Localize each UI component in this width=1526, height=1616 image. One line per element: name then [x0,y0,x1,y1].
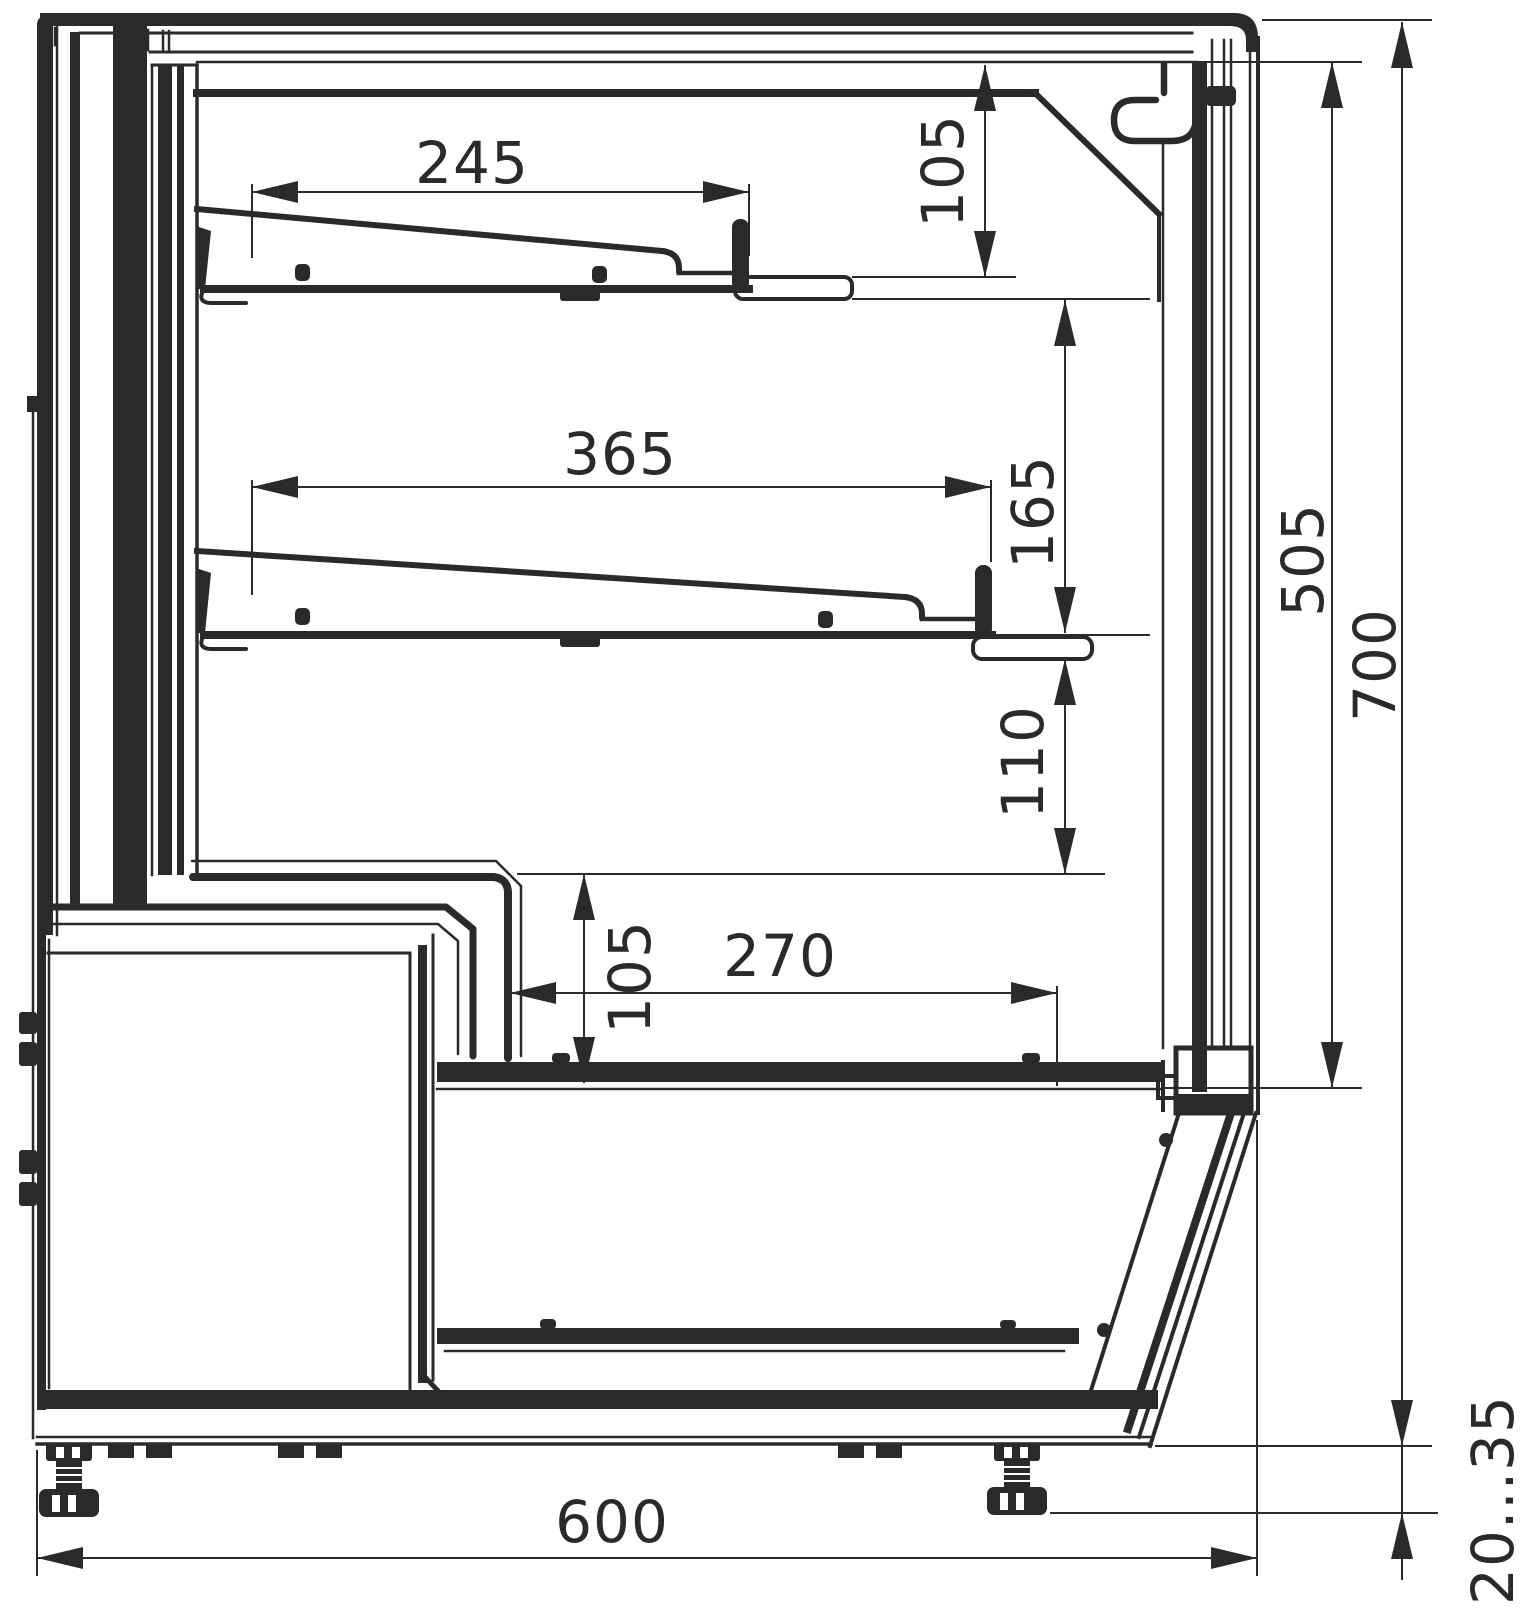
compartment-wall-band [418,945,427,1383]
adjustable-foot-left [39,1443,99,1517]
dim-label-600: 600 [555,1488,669,1556]
rail-bottom-bar [1176,1094,1251,1113]
door-hinge-lower [19,1150,37,1206]
duct-panel-1 [158,65,172,875]
bumper-line-outer [1150,1113,1256,1446]
dimension-overall-height: 700 [1341,22,1413,1580]
arrow-up [974,65,996,111]
back-wall-outer-band [37,16,53,935]
shelf-mid-rivet-1 [295,608,310,625]
dimension-shelf-mid-depth: 365 [252,420,991,498]
adjustable-foot-right [987,1443,1047,1515]
dim-label-700: 700 [1341,608,1409,722]
shelf-mid-rivet-2 [818,611,833,628]
arrow-down [1391,1400,1413,1446]
bumper-line-3 [1128,1113,1231,1429]
dim-label-105-top: 105 [909,114,977,228]
arrow-up [1054,300,1076,346]
shelf-mid-stopper-pin [975,565,992,637]
shelf-top-under-tab [560,291,600,301]
foot-plate [46,1443,92,1461]
technical-drawing-page: 245 105 365 165 110 [0,0,1526,1616]
bumper-line-2 [1139,1113,1244,1437]
arrow-up [1054,659,1076,705]
shelf-top-rivet-2 [592,266,607,283]
arrow-up-outside [1391,1513,1413,1559]
shelf-top-rivet-1 [295,264,310,281]
glass-pane [1192,62,1207,1092]
dim-label-165: 165 [999,455,1067,569]
shelf-top-bracket [196,226,211,289]
door-hinge-upper [19,1012,37,1066]
back-wall-lower-band [37,935,46,1410]
back-wall-panel-2 [113,25,147,907]
arrow-up [1321,62,1343,108]
shelf-top-surface [197,209,662,251]
dim-label-245: 245 [415,129,529,197]
arrow-right [1011,982,1057,1004]
dim-label-foot-range: 20...35 [1459,1395,1526,1605]
basin-rivet-2 [1000,1320,1016,1329]
arrow-right [703,181,749,203]
shelf-mid-bracket [196,568,211,633]
foot-plate [994,1443,1040,1461]
step-cover-3 [52,924,458,1054]
well-deck [437,1062,1163,1082]
arrow-left [37,1547,83,1569]
shelf-top [196,209,852,303]
base-mounting-tabs [108,1444,902,1458]
display-case-cross-section: 245 105 365 165 110 [0,0,1526,1616]
arrow-left [252,476,298,498]
front-glass-assembly [1087,38,1258,1446]
dimension-inner-height: 505 [1269,62,1343,1088]
back-wall-panel-1 [70,32,80,907]
arrow-right [945,476,991,498]
arrow-down [974,231,996,277]
dim-label-365: 365 [563,420,677,488]
dimension-shelf-to-step: 110 [989,659,1076,874]
duct-panel-2 [177,65,184,875]
dimension-foot-adjustment: 20...35 [1391,1395,1526,1605]
dim-label-105-low: 105 [596,920,664,1034]
dimensions: 245 105 365 165 110 [37,20,1526,1605]
bumper-clip-1 [1159,1133,1173,1147]
lamp-rail-hook [1114,64,1196,141]
dimension-base-depth: 600 [37,1488,1257,1569]
canopy [40,13,1258,300]
arrow-left [510,982,556,1004]
dimension-shelf-gap: 165 [999,300,1076,633]
arrow-up [1391,22,1413,68]
dim-label-505: 505 [1269,503,1337,617]
dimension-well-depth: 270 [510,922,1057,1004]
back-wall [19,16,197,1438]
basin-bottom-band [437,1328,1079,1344]
shelf-top-nose [662,251,679,272]
arrow-down [1054,828,1076,874]
dimension-well-height: 105 [573,874,664,1083]
arrow-down [1054,587,1076,633]
foot-stem [1004,1461,1030,1490]
shelf-mid-nose [905,597,922,618]
dim-label-270: 270 [723,922,837,990]
shelf-middle [196,551,1092,659]
deck-rivet-2 [1022,1053,1040,1063]
rear-cover-notch [27,396,37,412]
canopy-front-slope [1035,93,1159,214]
base-band [37,1390,1158,1409]
deck-rivet-1 [552,1053,570,1063]
shelf-mid-arm [973,637,1092,659]
basin-rivet-1 [540,1319,556,1329]
arrow-left [252,181,298,203]
dim-label-110: 110 [989,705,1057,819]
shelf-mid-surface [197,551,905,597]
machine-compartment [410,935,439,1392]
shelf-mid-under-tab [560,637,600,647]
bumper-clip-2 [1097,1323,1111,1337]
arrow-up [573,874,595,920]
arrow-right [1211,1547,1257,1569]
dimension-shelf-top-depth: 245 [252,129,749,203]
arrow-down [1321,1042,1343,1088]
